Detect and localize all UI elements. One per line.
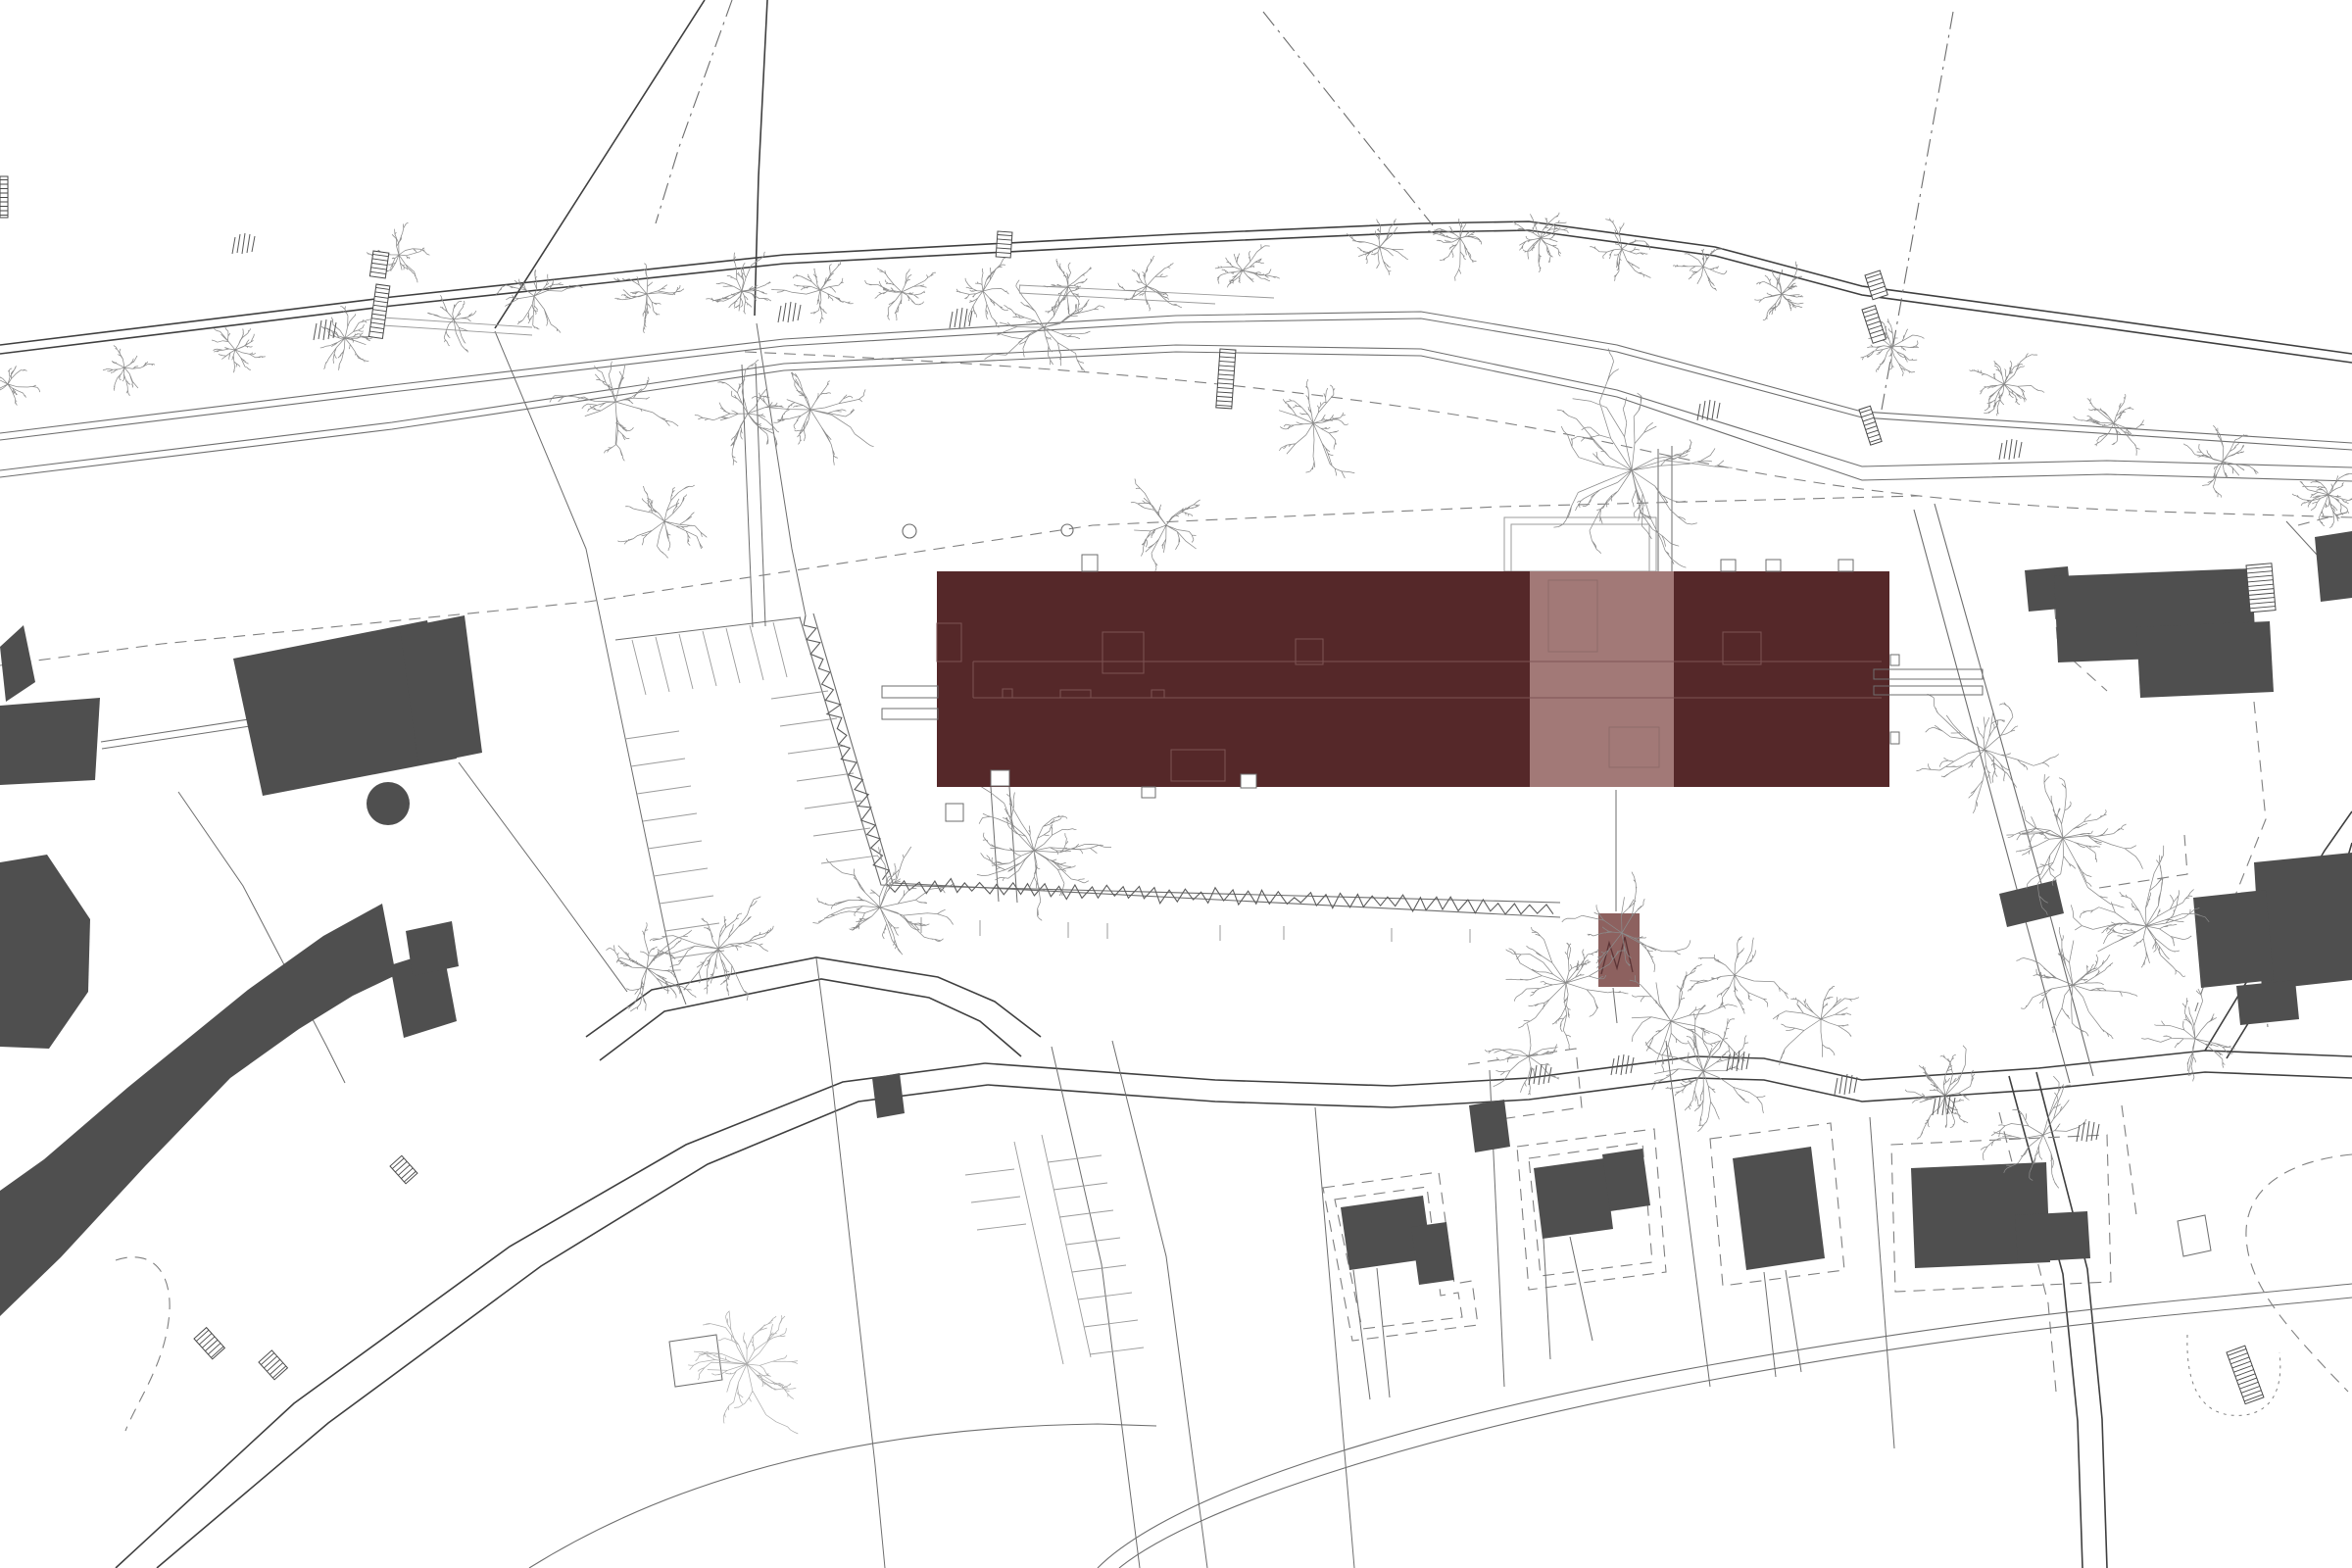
tree-symbol	[2292, 474, 2352, 528]
tree-symbol	[1428, 219, 1482, 281]
tree-symbol	[771, 261, 854, 323]
boundary-dashdot-1	[1263, 12, 1433, 225]
new-building-overlap-zone	[1530, 571, 1674, 787]
turnaround-dashed	[2246, 1154, 2352, 1392]
road-spur-northwest-a	[495, 0, 705, 328]
stairs-symbol	[194, 1328, 224, 1359]
stairs-symbol	[2246, 563, 2276, 612]
stairs-symbol	[1859, 406, 1882, 445]
house-east2-b	[2193, 890, 2274, 988]
driveway-lines-s3	[1764, 1270, 1801, 1377]
site-plan	[0, 0, 2352, 1568]
wall-bar-east	[1874, 669, 1983, 679]
tree-symbol	[1553, 349, 1732, 568]
tree-symbol	[606, 922, 696, 1011]
parking-stalls-left	[625, 731, 724, 958]
lower-road-southwest-b	[157, 1085, 988, 1568]
tree-symbol	[688, 1311, 798, 1434]
existing-building-outline	[1504, 517, 1656, 571]
hedge-post-ticks	[921, 917, 1470, 943]
lower-road-east-b	[988, 1072, 2352, 1107]
house-northeast-corner	[2315, 531, 2352, 602]
grass-tick-cluster	[778, 302, 801, 322]
tree-symbol	[2016, 927, 2137, 1039]
house-west-polygon	[0, 855, 90, 1049]
tree-symbol	[0, 359, 40, 405]
parcel-line	[615, 617, 801, 640]
stairs-outline	[259, 1350, 287, 1380]
grass-tick-cluster	[1999, 439, 2022, 460]
tree-symbol	[966, 773, 1111, 921]
footpath-curve-south-a	[1098, 1284, 2352, 1568]
stairs-outline	[2246, 563, 2276, 612]
tree-symbol	[1279, 379, 1354, 478]
utility-circle	[1061, 524, 1073, 536]
tree-symbol	[812, 847, 954, 955]
stairs-symbol	[369, 251, 388, 278]
main-road-top-edge	[0, 221, 2352, 354]
stairs-symbol	[2227, 1346, 2264, 1403]
shed-east-garden	[1999, 880, 2064, 927]
house-east2-c	[2236, 980, 2299, 1025]
site-plan-drawing	[0, 0, 2352, 1568]
stairs-outline	[0, 176, 8, 218]
footpath-curve-south-b	[1119, 1298, 2352, 1568]
tree-symbol	[982, 280, 1105, 371]
edge-tab	[991, 770, 1009, 786]
shed-southeast	[1469, 1100, 1510, 1152]
parcel-line	[1315, 1107, 1354, 1568]
grass-tick-cluster	[232, 233, 255, 254]
tree-symbol	[1347, 219, 1408, 275]
tree-symbol	[2074, 394, 2144, 456]
parking-stalls-upper	[632, 622, 787, 695]
stairs-symbol	[0, 176, 8, 218]
house-south2-a	[1534, 1158, 1613, 1239]
verge-line-1	[0, 312, 2352, 443]
edge-tab	[1142, 787, 1155, 798]
tree-symbol	[1688, 937, 1788, 1014]
tree-symbol	[1485, 1024, 1559, 1096]
parcel-line	[1052, 1047, 1140, 1568]
grass-tick-cluster	[2077, 1121, 2099, 1142]
parcel-line	[459, 762, 627, 992]
annex-trunk-line	[1613, 790, 1617, 1023]
house-south3	[1733, 1147, 1825, 1270]
wall-bar-west	[882, 709, 938, 719]
stairs-symbol	[1862, 306, 1886, 344]
annex-building	[1598, 913, 1640, 987]
dash-dot-lines	[656, 0, 1953, 410]
stairs-symbol	[368, 284, 389, 338]
edge-tab	[1838, 560, 1853, 571]
tree-symbol	[550, 362, 678, 462]
tree-symbol	[2141, 989, 2234, 1081]
tree-symbol	[1131, 479, 1200, 573]
parcel-line	[495, 331, 686, 1004]
tree-symbol	[1590, 219, 1650, 281]
tree-symbol	[1630, 964, 1745, 1072]
branch-road-southeast-a	[2009, 1076, 2082, 1568]
existing-building-outline-inner	[1511, 524, 1649, 571]
footpath-bottom-center	[529, 1424, 1156, 1568]
tree-symbol	[617, 485, 707, 558]
parcel-line	[1112, 1041, 1207, 1568]
slab-annex-b	[406, 921, 459, 976]
utility-circle	[903, 524, 916, 538]
tree-symbol	[1773, 987, 1859, 1065]
edge-tab	[1721, 560, 1736, 571]
tree-symbol	[1118, 256, 1182, 311]
tree-symbol	[706, 252, 771, 314]
road-dashed-line	[745, 352, 2352, 517]
tree-symbol	[427, 295, 476, 352]
parcel-line	[816, 958, 885, 1568]
road-spur-northwest-b	[755, 0, 767, 316]
edge-tab	[1890, 655, 1899, 665]
edge-tab	[1082, 555, 1098, 571]
house-east-low	[2136, 621, 2274, 698]
path-hook-dashed	[116, 1257, 170, 1431]
driveway-apron	[382, 318, 532, 335]
annex-group	[1598, 913, 1640, 987]
tree-symbol	[865, 269, 936, 320]
driveway-lines-s2	[1543, 1237, 1592, 1359]
tree-symbol	[752, 372, 874, 465]
boundary-east-2	[2099, 835, 2187, 888]
stairs-symbol	[390, 1155, 417, 1184]
wall-bar-east	[1874, 686, 1983, 695]
stairs-symbol	[1216, 349, 1236, 409]
branch-road-southeast-b	[2036, 1072, 2107, 1568]
wall-bar-west	[882, 686, 938, 698]
tree-symbol	[1916, 694, 2058, 813]
garage-outline-se	[2178, 1215, 2211, 1256]
house-northwest	[0, 698, 100, 785]
edge-tab	[1241, 774, 1256, 788]
tree-symbol	[1215, 244, 1280, 287]
driveway-lines-s1	[1353, 1268, 1390, 1399]
tree-symbol	[1970, 354, 2045, 416]
stairs-symbol	[259, 1350, 287, 1380]
edge-tab	[1890, 732, 1899, 744]
parcel-line	[1870, 1117, 1894, 1448]
dotted-loop	[2187, 1335, 2280, 1415]
main-road-top-edge2	[0, 230, 2352, 363]
edge-tab	[946, 804, 963, 821]
tree-symbol	[496, 269, 583, 332]
walk-line-1	[0, 345, 2352, 470]
tree-symbol	[212, 327, 266, 372]
tree-symbol	[956, 255, 1009, 327]
road-curve-center-b	[600, 979, 1021, 1060]
tree-symbol	[1673, 248, 1727, 290]
tree-symbol	[103, 345, 155, 396]
grass-tick-cluster	[1697, 400, 1720, 420]
boundary-branch-road-2	[2122, 1105, 2136, 1215]
house-southeast-b	[2015, 1211, 2090, 1262]
grass-tick-cluster	[1529, 1064, 1551, 1085]
utility-circles	[903, 524, 1073, 538]
stairs-symbol	[996, 231, 1012, 258]
tree-symbol	[2071, 846, 2209, 977]
house-south1-b	[1411, 1222, 1454, 1285]
tree-symbol	[614, 264, 684, 333]
path-to-hedge	[991, 787, 1017, 903]
parcel-line	[757, 323, 806, 615]
tree-symbol	[640, 897, 773, 1001]
edge-tab	[1766, 560, 1781, 571]
new-building	[937, 571, 1889, 787]
main-building-group	[882, 555, 1983, 821]
parcel-line	[742, 364, 765, 627]
stairs-outline	[390, 1155, 417, 1184]
tree-symbol	[1754, 262, 1803, 320]
boundary-dashdot-3	[656, 0, 732, 223]
shed-south-field	[872, 1073, 905, 1118]
shed-northwest-corner	[0, 625, 35, 702]
dotted-paths	[2187, 1335, 2280, 1415]
tree-symbol	[1905, 1046, 1975, 1140]
house-south2-b	[1602, 1149, 1650, 1211]
house-north-silo	[367, 782, 410, 825]
